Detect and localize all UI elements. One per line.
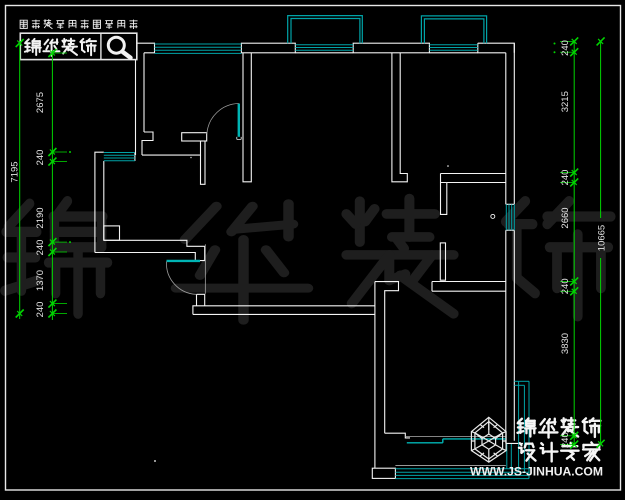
svg-text:240: 240	[35, 150, 46, 166]
svg-text:2675: 2675	[35, 92, 46, 113]
svg-text:7195: 7195	[10, 161, 21, 182]
svg-text:WWW.JS-JINHUA.COM: WWW.JS-JINHUA.COM	[470, 465, 603, 479]
svg-text:240: 240	[560, 170, 571, 186]
svg-text:2190: 2190	[35, 207, 46, 228]
svg-text:3830: 3830	[560, 333, 571, 354]
svg-text:240: 240	[560, 40, 571, 56]
svg-text:3215: 3215	[560, 91, 571, 112]
svg-text:10665: 10665	[596, 225, 607, 251]
svg-text:240: 240	[35, 302, 46, 318]
svg-text:240: 240	[560, 432, 571, 448]
svg-text:240: 240	[35, 240, 46, 256]
svg-text:1370: 1370	[35, 270, 46, 291]
svg-text:2660: 2660	[560, 207, 571, 228]
svg-text:240: 240	[560, 278, 571, 294]
